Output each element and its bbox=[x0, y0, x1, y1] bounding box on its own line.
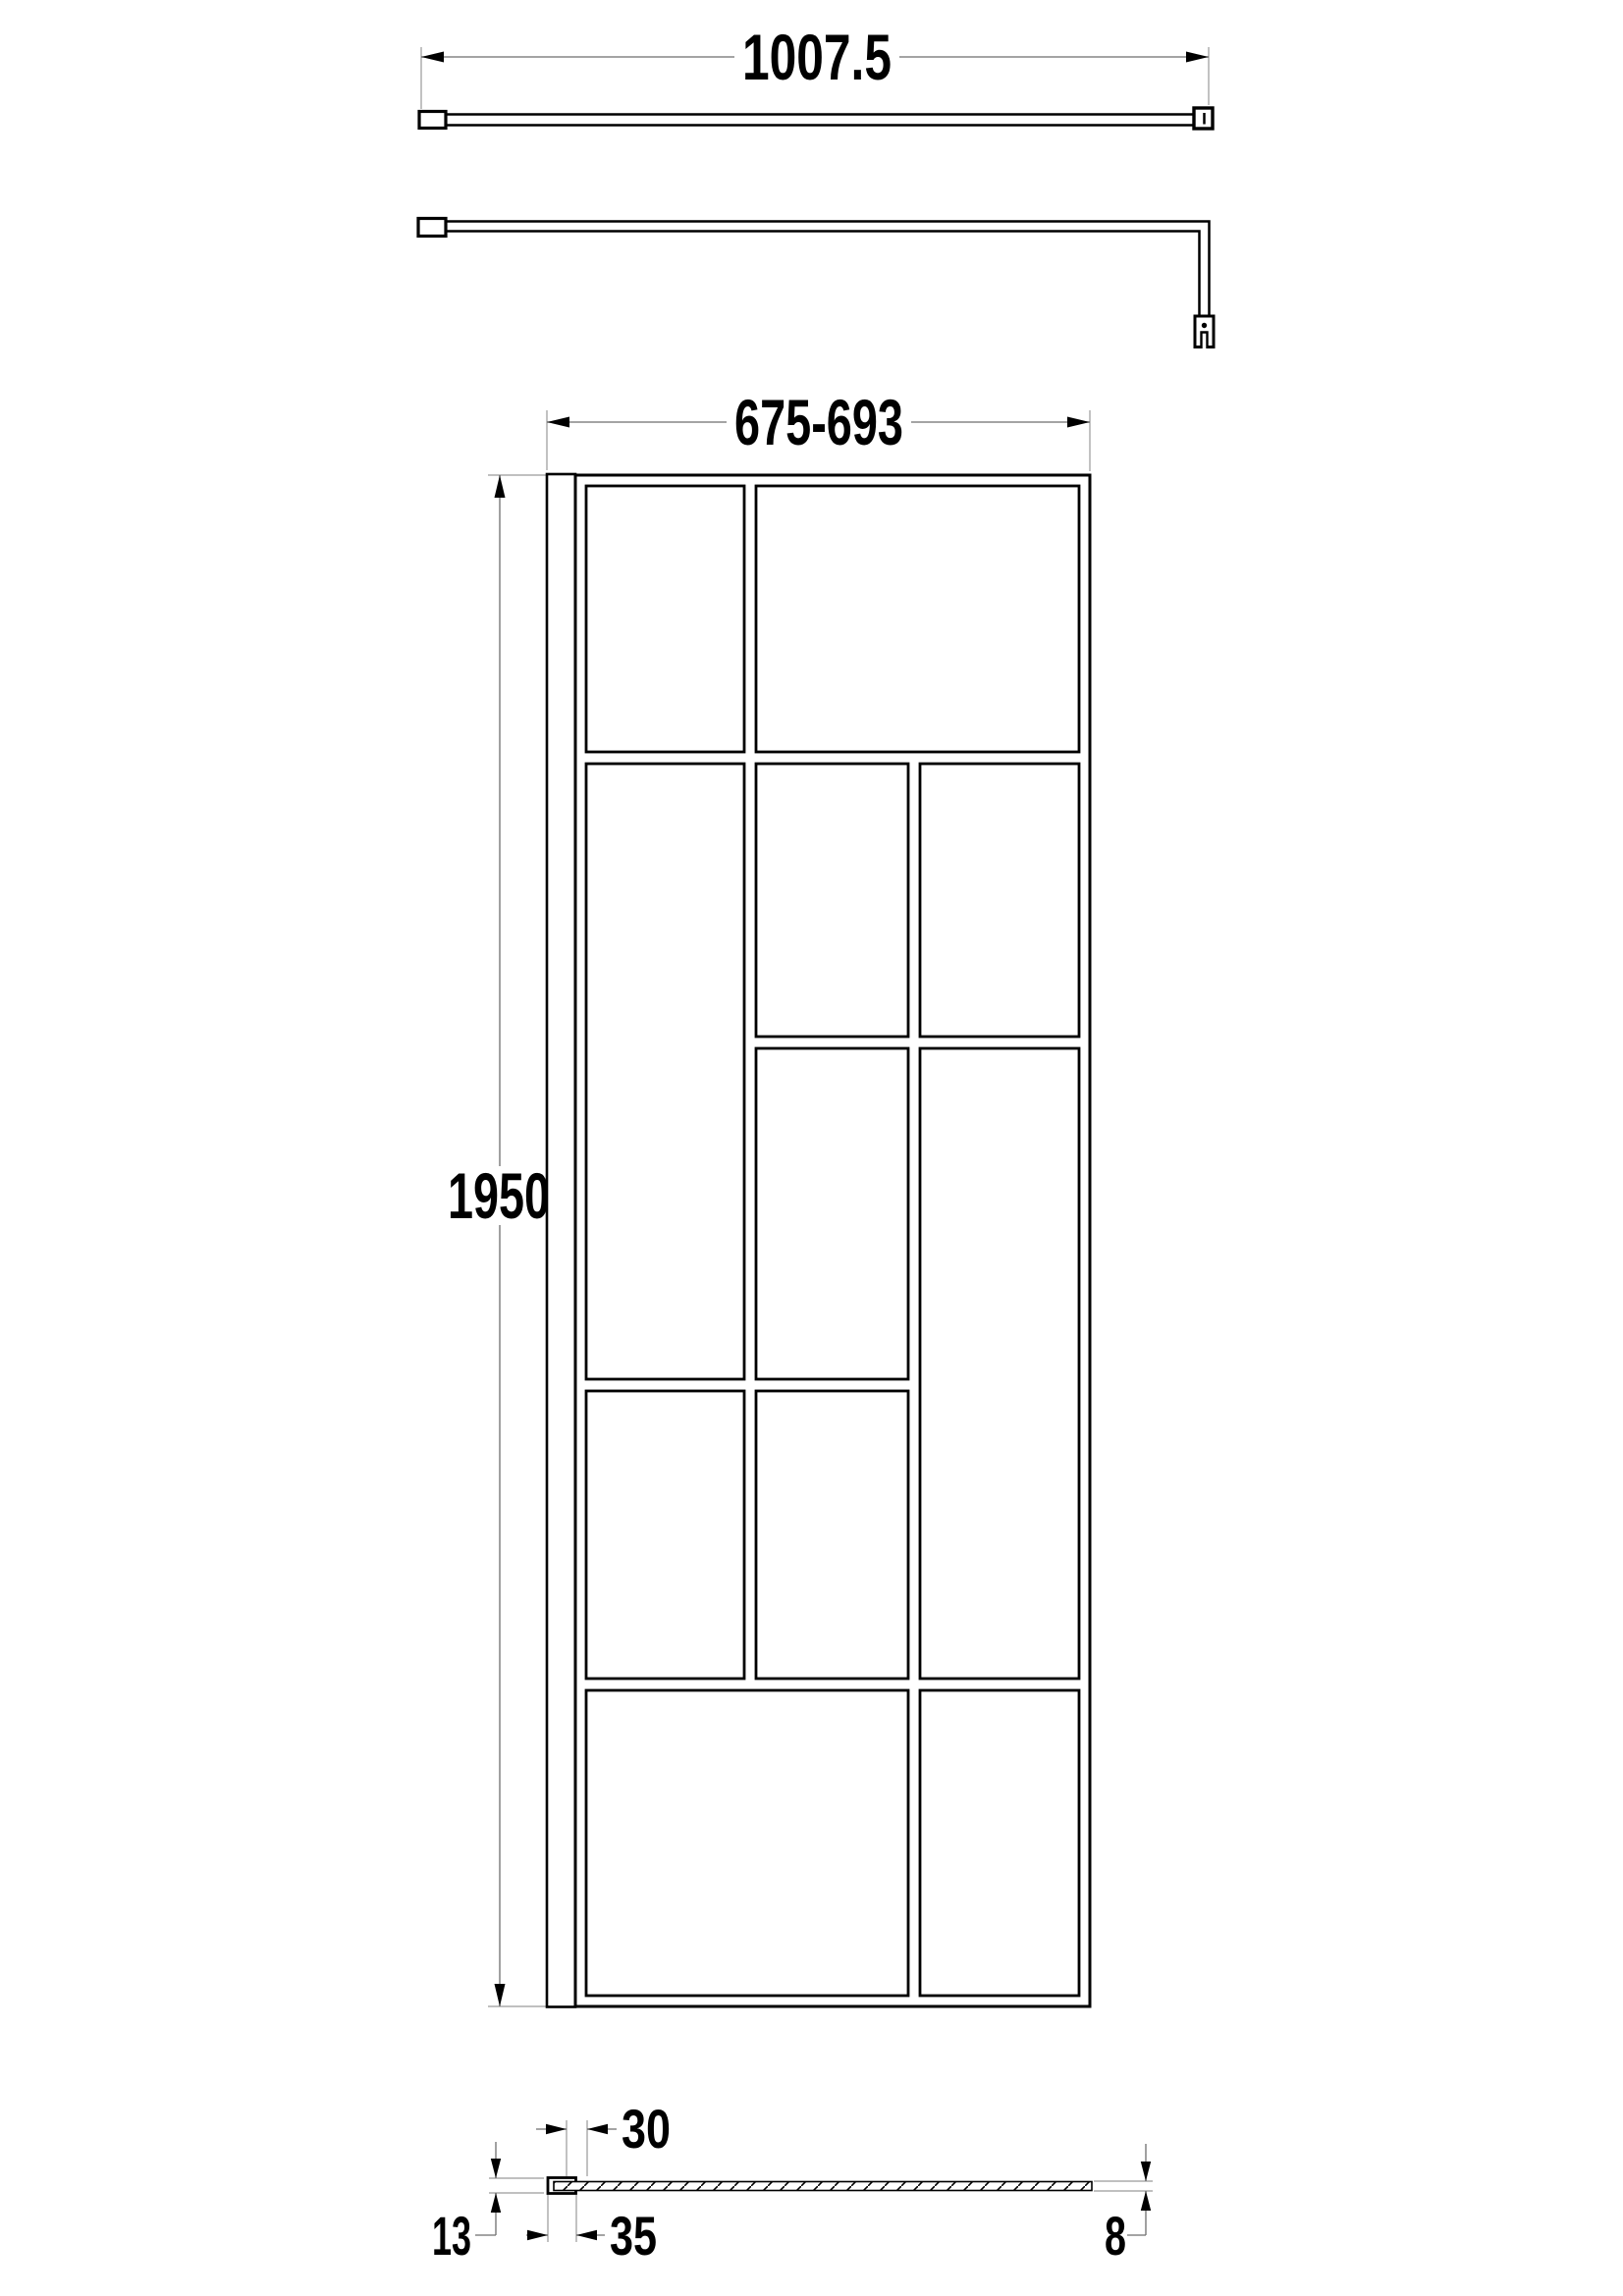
glass-pane bbox=[920, 1690, 1079, 1996]
dimension-label-wall-profile-width: 35 bbox=[610, 2205, 657, 2267]
screw-hole-dot bbox=[1202, 323, 1207, 328]
dimension-label-wall-profile-depth: 13 bbox=[432, 2205, 471, 2267]
glass-pane bbox=[586, 486, 744, 752]
dimension-label-glass-thickness: 8 bbox=[1105, 2205, 1126, 2267]
glass-clamp-end-cap bbox=[418, 219, 446, 237]
glass-clamp-end-cap bbox=[419, 112, 446, 129]
dimension-label-screen-height: 1950 bbox=[448, 1159, 550, 1232]
dimension-label-screen-width: 675-693 bbox=[734, 386, 903, 458]
glass-pane bbox=[920, 764, 1079, 1037]
glass-pane bbox=[756, 764, 908, 1037]
glass-pane bbox=[586, 1690, 908, 1996]
glass-pane bbox=[756, 1048, 908, 1379]
glass-pane bbox=[756, 1391, 908, 1679]
glass-pane bbox=[586, 764, 744, 1379]
shower-screen-technical-drawing: 1007.5 675-693 bbox=[0, 0, 1623, 2296]
glass-pane bbox=[920, 1048, 1079, 1679]
dimension-label-profile-adjustment: 30 bbox=[622, 2098, 671, 2160]
wall-profile-strip bbox=[547, 474, 575, 2007]
dimension-label-support-bar-length: 1007.5 bbox=[742, 21, 892, 93]
glass-pane-grid bbox=[586, 486, 1079, 1996]
glass-pane bbox=[756, 486, 1079, 752]
glass-panel-section bbox=[554, 2182, 1092, 2191]
glass-pane bbox=[586, 1391, 744, 1679]
support-bar-tube bbox=[443, 115, 1195, 126]
